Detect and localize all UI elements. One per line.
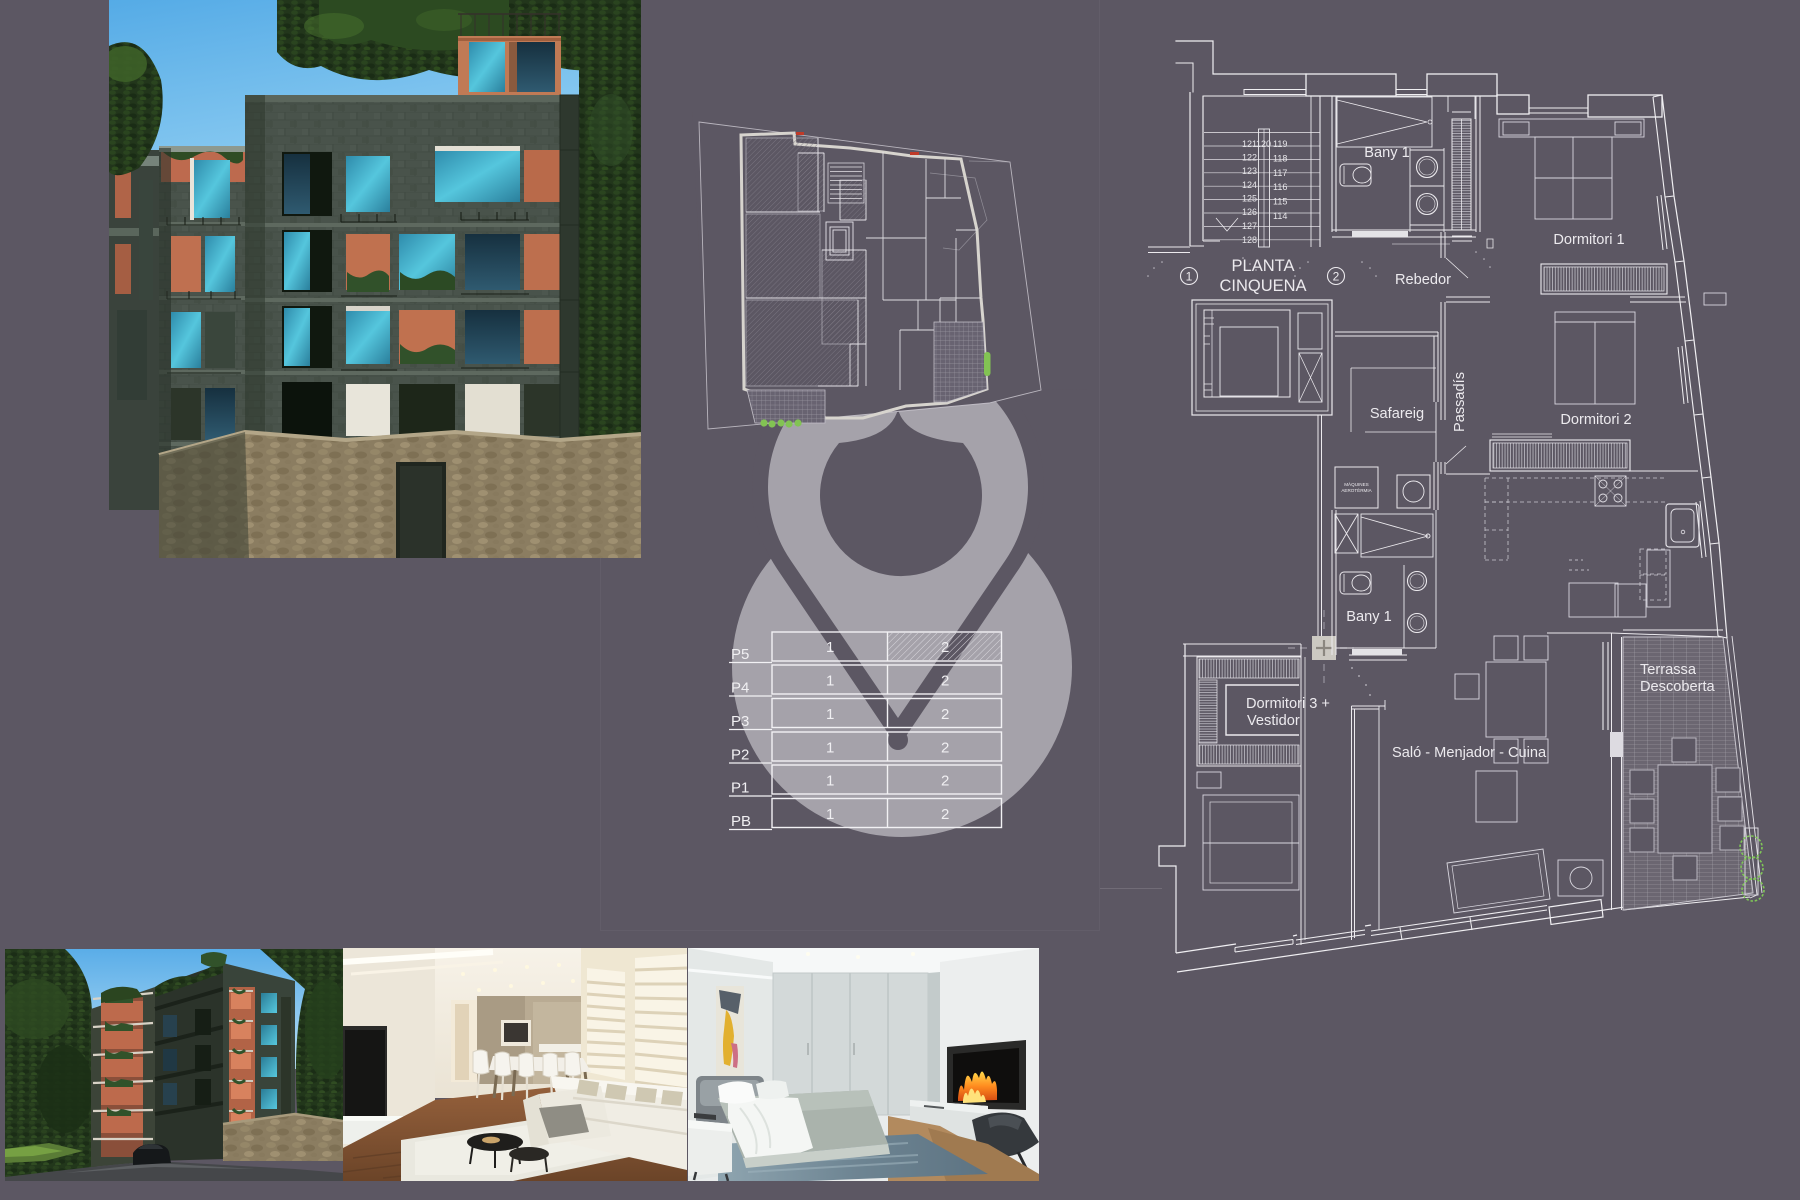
svg-text:PLANTA: PLANTA [1232,257,1295,275]
svg-text:127: 127 [1242,221,1257,231]
svg-text:Bany 1: Bany 1 [1364,145,1409,161]
svg-text:1: 1 [826,773,834,790]
svg-text:2: 2 [941,706,949,723]
svg-text:122: 122 [1242,152,1257,162]
svg-text:114: 114 [1273,211,1287,221]
svg-text:118: 118 [1273,153,1287,163]
svg-text:124: 124 [1242,180,1257,190]
svg-text:P5: P5 [731,646,749,663]
svg-text:1: 1 [1186,270,1193,284]
svg-text:123: 123 [1242,166,1257,176]
svg-text:117: 117 [1273,168,1287,178]
svg-text:CINQUENA: CINQUENA [1219,277,1306,295]
svg-text:1: 1 [826,639,834,656]
svg-text:2: 2 [941,740,949,757]
svg-text:P4: P4 [731,680,749,697]
svg-text:1: 1 [826,673,834,690]
svg-text:2: 2 [941,773,949,790]
svg-text:Descoberta: Descoberta [1640,679,1716,695]
svg-text:115: 115 [1273,197,1287,207]
svg-text:PB: PB [731,813,751,830]
svg-text:1: 1 [826,806,834,823]
svg-text:Dormitori 1: Dormitori 1 [1553,232,1624,248]
svg-text:2: 2 [1333,270,1340,284]
svg-text:Bany 1: Bany 1 [1346,609,1391,625]
svg-text:126: 126 [1242,207,1257,217]
svg-text:116: 116 [1273,182,1287,192]
svg-text:MÀQUINES: MÀQUINES [1344,481,1369,487]
svg-text:P3: P3 [731,713,749,730]
svg-text:121: 121 [1242,139,1257,149]
svg-text:Vestidor: Vestidor [1247,713,1300,729]
svg-text:125: 125 [1242,194,1257,204]
svg-text:2: 2 [941,639,949,656]
svg-text:Terrassa: Terrassa [1640,662,1697,678]
svg-text:119: 119 [1273,139,1287,149]
svg-text:1: 1 [826,706,834,723]
svg-text:Passadís: Passadís [1452,372,1468,432]
svg-text:1: 1 [826,740,834,757]
svg-text:P2: P2 [731,747,749,764]
svg-text:2: 2 [941,673,949,690]
svg-text:Dormitori 2: Dormitori 2 [1560,412,1631,428]
svg-text:Rebedor: Rebedor [1395,272,1451,288]
svg-text:2: 2 [941,806,949,823]
svg-text:Safareig: Safareig [1370,406,1424,422]
svg-text:Dormitori 3 +: Dormitori 3 + [1246,696,1330,712]
svg-text:AEROTÈRMIA: AEROTÈRMIA [1341,487,1372,493]
svg-text:P1: P1 [731,780,749,797]
svg-text:128: 128 [1242,235,1257,245]
svg-text:120: 120 [1256,139,1271,149]
